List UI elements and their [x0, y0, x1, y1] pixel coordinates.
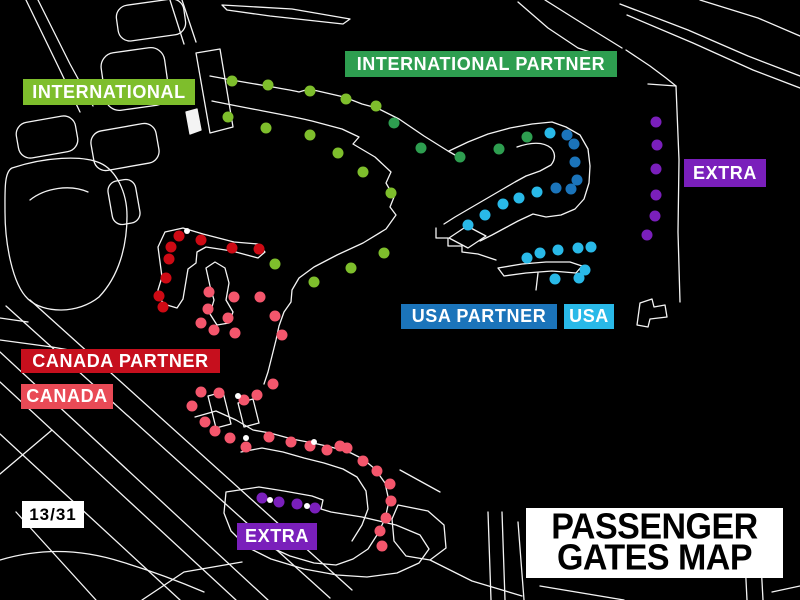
gate-dot-usa	[553, 245, 564, 256]
gate-dot-extra	[310, 503, 321, 514]
gate-dot-extra	[651, 117, 662, 128]
gate-dot-unassigned-white	[311, 439, 317, 445]
gate-dot-canada-partner	[174, 231, 185, 242]
gate-dot-canada-partner	[254, 244, 265, 255]
gate-dot-canada	[372, 466, 383, 477]
gate-dot-canada	[187, 401, 198, 412]
gate-dot-canada	[214, 388, 225, 399]
legend-label-extra-right: EXTRA	[684, 159, 766, 187]
gate-dot-canada	[204, 287, 215, 298]
gate-dot-canada	[277, 330, 288, 341]
gate-dot-international-partner	[416, 143, 427, 154]
gate-dot-usa	[498, 199, 509, 210]
legend-label-usa: USA	[564, 304, 614, 329]
gate-dot-international	[309, 277, 320, 288]
map-title: PASSENGER GATES MAP	[526, 508, 783, 578]
gate-dot-usa	[514, 193, 525, 204]
gate-dot-canada	[286, 437, 297, 448]
gate-dot-international	[305, 86, 316, 97]
gate-dot-international	[386, 188, 397, 199]
gate-dot-canada	[385, 479, 396, 490]
runway-designator: 13/31	[22, 501, 84, 528]
gate-dot-international	[223, 112, 234, 123]
gate-dot-canada	[268, 379, 279, 390]
gate-dot-international	[346, 263, 357, 274]
gate-dot-canada	[210, 426, 221, 437]
gate-dot-extra	[650, 211, 661, 222]
gate-dot-canada-partner	[196, 235, 207, 246]
gate-dot-international	[358, 167, 369, 178]
gate-dot-canada	[203, 304, 214, 315]
gate-dot-canada	[196, 318, 207, 329]
gate-dot-canada	[375, 526, 386, 537]
gate-dot-canada	[270, 311, 281, 322]
gate-dot-international	[305, 130, 316, 141]
gate-dot-international	[227, 76, 238, 87]
gate-dot-international	[263, 80, 274, 91]
gate-dot-canada	[377, 541, 388, 552]
gate-dot-canada-partner	[161, 273, 172, 284]
gate-dot-international-partner	[522, 132, 533, 143]
gate-dot-canada	[223, 313, 234, 324]
gate-dot-usa-partner	[570, 157, 581, 168]
gate-dot-international-partner	[389, 118, 400, 129]
gate-dot-canada	[322, 445, 333, 456]
gate-dot-usa	[573, 243, 584, 254]
gate-dot-canada-partner	[227, 243, 238, 254]
gate-dot-canada-partner	[164, 254, 175, 265]
gate-dot-canada-partner	[158, 302, 169, 313]
gate-dot-international	[261, 123, 272, 134]
legend-label-international: INTERNATIONAL	[23, 79, 195, 105]
gate-dot-extra	[652, 140, 663, 151]
gate-dot-usa-partner	[569, 139, 580, 150]
gate-dot-extra	[642, 230, 653, 241]
gate-dot-canada	[381, 513, 392, 524]
legend-label-canada-partner: CANADA PARTNER	[21, 349, 220, 373]
gate-dot-extra	[651, 164, 662, 175]
gate-dot-canada	[252, 390, 263, 401]
gate-dot-unassigned-white	[235, 393, 241, 399]
gate-dot-canada	[209, 325, 220, 336]
gate-dot-extra	[651, 190, 662, 201]
gate-dot-usa-partner	[551, 183, 562, 194]
gate-dot-international-partner	[494, 144, 505, 155]
gate-dot-canada	[264, 432, 275, 443]
runway-designator-text: 13/31	[29, 505, 77, 525]
gate-dot-usa	[532, 187, 543, 198]
gate-dot-international-partner	[455, 152, 466, 163]
passenger-gates-map: INTERNATIONAL INTERNATIONAL PARTNER EXTR…	[0, 0, 800, 600]
legend-label-usa-partner: USA PARTNER	[401, 304, 557, 329]
gate-dot-usa	[586, 242, 597, 253]
gate-dot-usa-partner	[572, 175, 583, 186]
gate-dot-canada-partner	[154, 291, 165, 302]
gate-dot-extra	[257, 493, 268, 504]
gate-dot-canada	[358, 456, 369, 467]
gate-dot-usa	[550, 274, 561, 285]
gate-dot-usa	[574, 273, 585, 284]
gate-dot-canada	[200, 417, 211, 428]
gate-dot-canada	[196, 387, 207, 398]
gate-dot-canada	[342, 443, 353, 454]
gate-dot-international	[333, 148, 344, 159]
gate-dot-unassigned-white	[267, 497, 273, 503]
legend-label-extra-bottom: EXTRA	[237, 523, 317, 550]
gate-dot-international	[371, 101, 382, 112]
gate-dot-usa	[522, 253, 533, 264]
gate-dot-canada	[225, 433, 236, 444]
legend-label-international-partner: INTERNATIONAL PARTNER	[345, 51, 617, 77]
gate-dot-canada	[255, 292, 266, 303]
gate-dot-canada	[230, 328, 241, 339]
gate-dot-international	[341, 94, 352, 105]
gate-dot-unassigned-white	[243, 435, 249, 441]
gate-dot-extra	[274, 497, 285, 508]
gate-dot-usa	[463, 220, 474, 231]
gate-dot-canada	[241, 442, 252, 453]
gate-dot-usa-partner	[566, 184, 577, 195]
gate-dot-international	[270, 259, 281, 270]
gate-dot-usa	[545, 128, 556, 139]
gate-dot-unassigned-white	[184, 228, 190, 234]
map-title-line2: GATES MAP	[557, 542, 752, 575]
legend-label-canada: CANADA	[21, 384, 113, 409]
gate-dot-canada	[229, 292, 240, 303]
gate-dot-usa	[535, 248, 546, 259]
gate-dot-canada	[386, 496, 397, 507]
gate-dot-usa	[480, 210, 491, 221]
gate-dot-unassigned-white	[304, 503, 310, 509]
gate-dot-canada-partner	[166, 242, 177, 253]
gate-dot-international	[379, 248, 390, 259]
gate-dot-extra	[292, 499, 303, 510]
gate-dot-usa-partner	[562, 130, 573, 141]
